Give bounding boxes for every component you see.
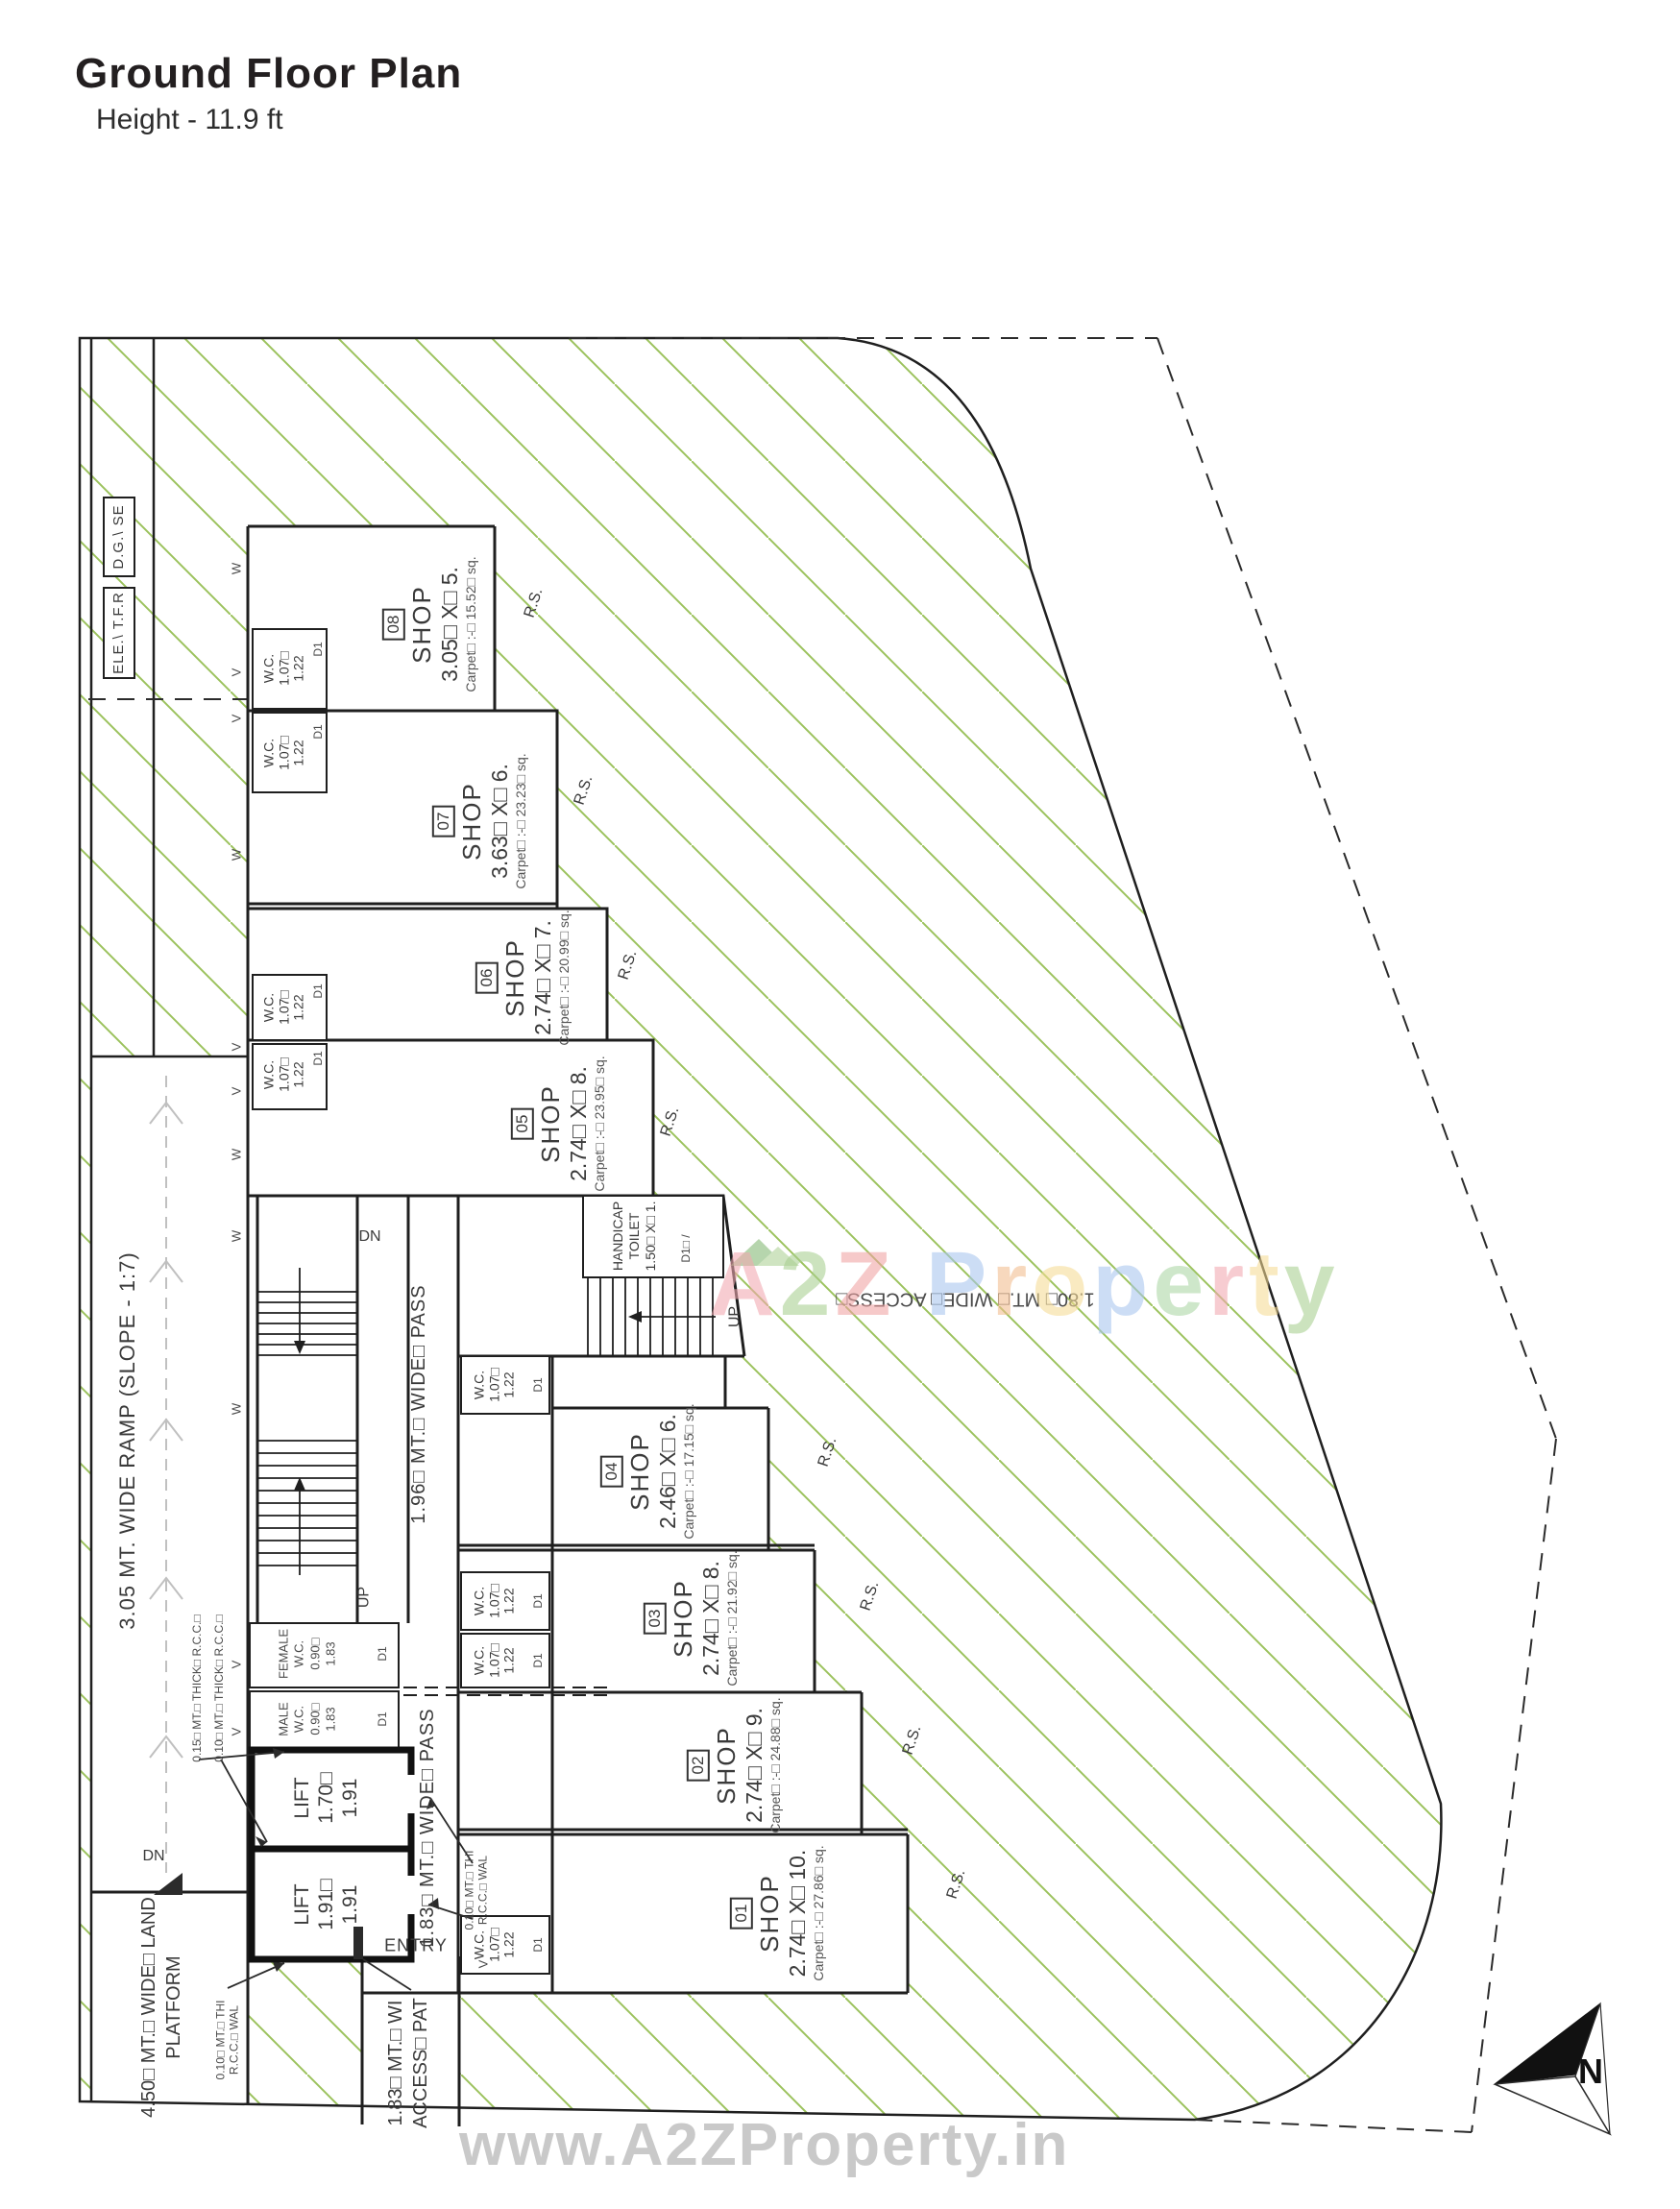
vent-label: V [229, 1728, 243, 1736]
utility-box-dg-set: D.G.\ SE [110, 504, 128, 569]
watermark-letter: y [1284, 1233, 1340, 1335]
pass-183-label: 1.83□ MT.□ WIDE□ PASS [417, 1708, 440, 1947]
watermark-letter: Z [835, 1233, 895, 1335]
watermark-bottom: www.A2ZProperty.in [459, 2111, 1069, 2179]
shop-03-label: 03 SHOP 2.74□ X□ 8. Carpet□ :-□ 21.92□ s… [644, 1550, 740, 1686]
wall-010-thi-note: 0.10□ MT.□ THI R.C.C.□ WAL [463, 1851, 491, 1930]
floor-plan-page: Ground Floor Plan Height - 11.9 ft D.G.\… [0, 0, 1680, 2209]
window-label: W [229, 1403, 243, 1415]
female-wc-label: FEMALEW.C. 0.90□1.83 [277, 1629, 339, 1679]
watermark-letter: r [1208, 1233, 1249, 1335]
shop-number: 03 [644, 1603, 667, 1635]
wc-label: W.C.1.07□1.22 [261, 651, 306, 686]
watermark-letter [895, 1233, 925, 1335]
shop-name: SHOP [625, 1403, 655, 1539]
shop-number: 02 [687, 1750, 710, 1782]
shop-dimensions: 2.46□ X□ 6. [655, 1403, 681, 1539]
watermark-letter: t [1249, 1233, 1284, 1335]
page-subtitle: Height - 11.9 ft [96, 104, 462, 136]
stair-up-label: UP [356, 1587, 375, 1608]
shop-08-label: 08 SHOP 3.05□ X□ 5. Carpet□ :-□ 15.52□ s… [382, 556, 478, 692]
watermark-letter: p [1092, 1233, 1153, 1335]
title-block: Ground Floor Plan Height - 11.9 ft [75, 50, 462, 136]
wc-label: W.C.1.07□1.22 [472, 1584, 517, 1618]
handicap-toilet-label: HANDICAP TOILET 1.50□ X□ 1. [610, 1202, 658, 1272]
wc-label: W.C.1.07□1.22 [261, 990, 306, 1025]
vent-label: V [229, 715, 243, 723]
entry-label: ENTRY [384, 1936, 448, 1956]
shop-number: 07 [432, 806, 455, 837]
door-label-d1: D1 [311, 1051, 325, 1065]
wall-015-thick-note: 0.15□ MT.□ THICK□ R.C.C.□ [190, 1614, 204, 1761]
lift-2-label: LIFT 1.91□ 1.91 [290, 1879, 363, 1930]
vent-label: V [229, 1043, 243, 1052]
watermark-letter: A [709, 1233, 780, 1335]
watermark-center: A2Z Property [709, 1232, 1340, 1337]
shop-carpet-area: Carpet□ :-□ 23.95□ sq. [592, 1056, 608, 1191]
door-label-d1: D1 [376, 1646, 389, 1661]
watermark-letter: r [991, 1233, 1032, 1335]
shop-dimensions: 2.74□ X□ 8. [698, 1550, 724, 1686]
page-title: Ground Floor Plan [75, 50, 462, 98]
wc-label: W.C.1.07□1.22 [261, 1057, 306, 1092]
vent-label: V [229, 668, 243, 677]
shop-name: SHOP [536, 1056, 566, 1191]
window-label: W [229, 849, 243, 861]
shop-carpet-area: Carpet□ :-□ 20.99□ sq. [556, 910, 572, 1045]
shop-number: 08 [382, 609, 405, 641]
shop-name: SHOP [407, 556, 437, 692]
shop-name: SHOP [712, 1697, 742, 1833]
vent-label: V [229, 1661, 243, 1669]
shop-dimensions: 2.74□ X□ 10. [785, 1845, 811, 1980]
shop-02-label: 02 SHOP 2.74□ X□ 9. Carpet□ :-□ 24.88□ s… [687, 1697, 783, 1833]
wc-label: W.C.1.07□1.22 [472, 1643, 517, 1678]
shop-carpet-area: Carpet□ :-□ 23.23□ sq. [513, 753, 529, 888]
shop-name: SHOP [755, 1845, 785, 1980]
lift-1-label: LIFT 1.70□ 1.91 [290, 1772, 363, 1824]
utility-box-ele-tfr: ELE.\ T.F.R [110, 592, 128, 674]
watermark-letter: P [926, 1233, 991, 1335]
pass-196-label: 1.96□ MT.□ WIDE□ PASS [408, 1284, 431, 1523]
vent-label: V [229, 1087, 243, 1096]
watermark-letter: 2 [780, 1233, 836, 1335]
stair-dn-label: DN [358, 1228, 380, 1246]
door-label-d1: D1 [376, 1711, 389, 1726]
vent-label: V [475, 1960, 490, 1969]
floor-plan-drawing [0, 0, 1680, 2209]
land-platform-label: 4.50□ MT.□ WIDE□ LAND PLATFORM [136, 1897, 186, 2118]
ramp-dn-label: DN [142, 1848, 164, 1865]
shop-01-label: 01 SHOP 2.74□ X□ 10. Carpet□ :-□ 27.86□ … [730, 1845, 826, 1980]
shop-dimensions: 2.74□ X□ 7. [530, 910, 556, 1045]
door-label-d1: D1 [531, 1653, 545, 1667]
wall-010-thi-note: 0.10□ MT.□ THI R.C.C.□ WAL [214, 2001, 242, 2080]
shop-number: 01 [730, 1898, 753, 1930]
shop-number: 05 [511, 1108, 534, 1140]
shop-carpet-area: Carpet□ :-□ 21.92□ sq. [724, 1550, 741, 1686]
wc-label: W.C.1.07□1.22 [472, 1368, 517, 1402]
shop-07-label: 07 SHOP 3.63□ X□ 6. Carpet□ :-□ 23.23□ s… [432, 753, 528, 888]
ramp-label: 3.05 MT. WIDE RAMP (SLOPE - 1:7) [115, 1251, 140, 1629]
shop-dimensions: 2.74□ X□ 8. [566, 1056, 592, 1191]
watermark-letter: o [1032, 1233, 1092, 1335]
wc-label: W.C.1.07□1.22 [472, 1928, 517, 1962]
shop-number: 04 [600, 1456, 623, 1488]
shop-carpet-area: Carpet□ :-□ 17.15□ sq. [681, 1403, 697, 1539]
door-label-d1: D1 [311, 642, 325, 656]
window-label: W [229, 1149, 243, 1160]
north-label: N [1578, 2051, 1603, 2092]
shop-name: SHOP [457, 753, 487, 888]
door-label-d1: D1□ / [679, 1234, 693, 1262]
shop-carpet-area: Carpet□ :-□ 27.86□ sq. [811, 1845, 827, 1980]
door-label-d1: D1 [531, 1593, 545, 1608]
shop-dimensions: 2.74□ X□ 9. [742, 1697, 767, 1833]
shop-06-label: 06 SHOP 2.74□ X□ 7. Carpet□ :-□ 20.99□ s… [475, 910, 572, 1045]
window-label: W [229, 563, 243, 574]
window-label: W [229, 1230, 243, 1242]
shop-05-label: 05 SHOP 2.74□ X□ 8. Carpet□ :-□ 23.95□ s… [511, 1056, 607, 1191]
door-label-d1: D1 [311, 983, 325, 998]
door-label-d1: D1 [531, 1937, 545, 1952]
watermark-letter: e [1153, 1233, 1208, 1335]
wc-label: W.C.1.07□1.22 [261, 736, 306, 770]
shop-name: SHOP [500, 910, 530, 1045]
shop-name: SHOP [669, 1550, 698, 1686]
wall-010-thick-note: 0.10□ MT.□ THICK□ R.C.C.□ [212, 1614, 226, 1761]
male-wc-label: MALEW.C. 0.90□1.83 [277, 1702, 339, 1736]
access-path-label: 1.83□ MT.□ WI ACCESS□ PAT [383, 1998, 433, 2128]
shop-dimensions: 3.05□ X□ 5. [437, 556, 463, 692]
shop-carpet-area: Carpet□ :-□ 15.52□ sq. [463, 556, 479, 692]
door-label-d1: D1 [531, 1377, 545, 1392]
shop-carpet-area: Carpet□ :-□ 24.88□ sq. [767, 1697, 784, 1833]
door-label-d1: D1 [311, 724, 325, 739]
shop-dimensions: 3.63□ X□ 6. [487, 753, 513, 888]
shop-number: 06 [475, 962, 499, 994]
shop-04-label: 04 SHOP 2.46□ X□ 6. Carpet□ :-□ 17.15□ s… [600, 1403, 696, 1539]
